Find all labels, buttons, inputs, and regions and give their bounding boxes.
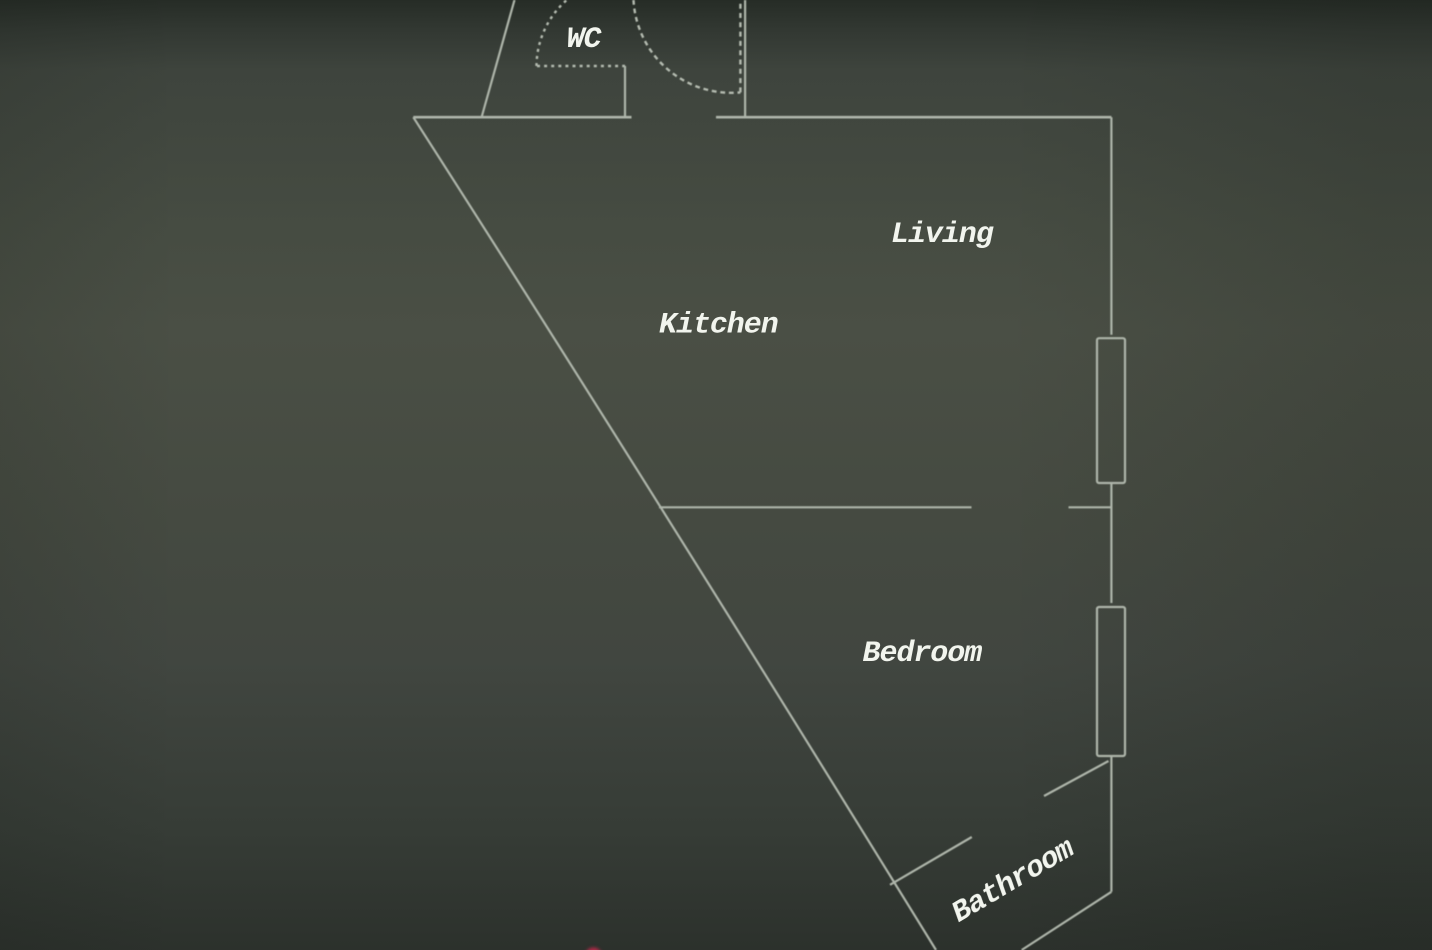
svg-text:WC: WC bbox=[567, 23, 603, 57]
svg-text:Living: Living bbox=[891, 218, 994, 252]
svg-text:Bathroom: Bathroom bbox=[946, 832, 1081, 931]
svg-text:Bedroom: Bedroom bbox=[863, 637, 983, 671]
svg-text:Kitchen: Kitchen bbox=[659, 309, 778, 343]
